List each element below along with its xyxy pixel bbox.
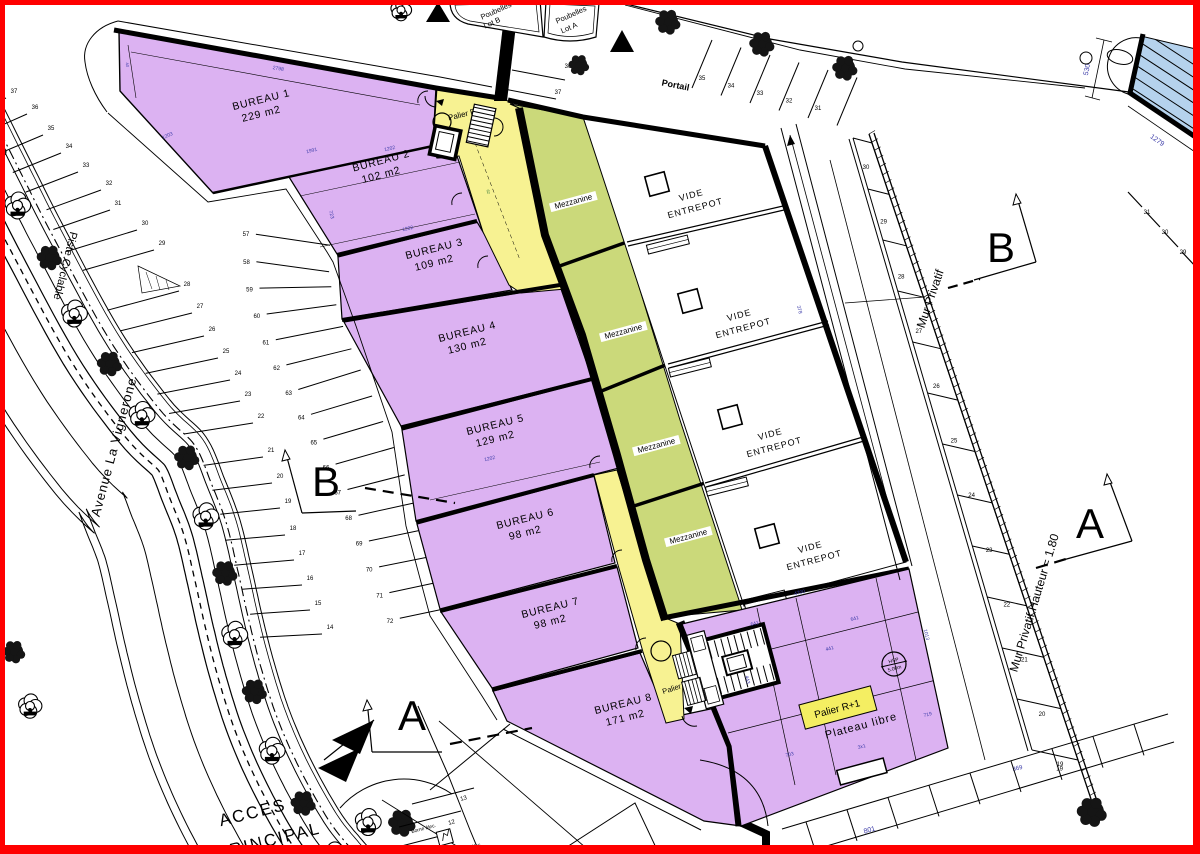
svg-text:27: 27 (197, 304, 204, 310)
svg-text:71: 71 (376, 593, 383, 599)
svg-text:69: 69 (356, 542, 363, 548)
svg-text:29: 29 (1180, 250, 1187, 256)
svg-text:33: 33 (83, 163, 90, 169)
svg-text:58: 58 (243, 260, 250, 266)
svg-text:72: 72 (387, 619, 394, 625)
svg-text:25: 25 (223, 349, 230, 355)
svg-text:32: 32 (786, 99, 793, 105)
svg-text:26: 26 (933, 384, 940, 390)
svg-text:23: 23 (986, 548, 993, 554)
svg-text:63: 63 (285, 391, 292, 397)
svg-text:29: 29 (880, 220, 887, 226)
svg-text:20: 20 (1039, 712, 1046, 718)
svg-text:34: 34 (728, 84, 735, 90)
svg-text:28: 28 (898, 274, 905, 280)
svg-text:36: 36 (32, 105, 39, 111)
svg-text:18: 18 (290, 526, 297, 532)
svg-text:20: 20 (277, 474, 284, 480)
svg-text:22: 22 (258, 414, 265, 420)
svg-text:14: 14 (327, 625, 334, 631)
svg-text:B: B (987, 224, 1015, 271)
svg-text:30: 30 (863, 165, 870, 171)
svg-text:68: 68 (345, 516, 352, 522)
svg-text:25: 25 (951, 439, 958, 445)
svg-text:30: 30 (142, 221, 149, 227)
svg-text:15: 15 (315, 601, 322, 607)
svg-text:65: 65 (310, 440, 317, 446)
svg-text:64: 64 (298, 416, 305, 422)
svg-text:57: 57 (243, 232, 250, 238)
svg-text:23: 23 (245, 392, 252, 398)
svg-text:35: 35 (699, 76, 706, 82)
svg-text:29: 29 (159, 241, 166, 247)
svg-text:B: B (312, 458, 340, 505)
svg-text:26: 26 (209, 327, 216, 333)
svg-text:30: 30 (1162, 230, 1169, 236)
svg-text:33: 33 (757, 91, 764, 97)
svg-text:A: A (1076, 500, 1104, 547)
svg-text:62: 62 (273, 366, 280, 372)
svg-text:61: 61 (263, 340, 270, 346)
svg-text:34: 34 (66, 144, 73, 150)
svg-text:22: 22 (1003, 603, 1010, 609)
svg-text:27: 27 (915, 329, 922, 335)
svg-text:21: 21 (268, 448, 275, 454)
svg-text:24: 24 (235, 371, 242, 377)
svg-text:28: 28 (184, 282, 191, 288)
svg-text:59: 59 (246, 287, 253, 293)
svg-text:35: 35 (48, 126, 55, 132)
svg-text:16: 16 (307, 576, 314, 582)
svg-text:31: 31 (1144, 210, 1151, 216)
svg-text:32: 32 (106, 181, 113, 187)
svg-text:31: 31 (115, 201, 122, 207)
svg-text:19: 19 (285, 499, 292, 505)
svg-text:31: 31 (815, 106, 822, 112)
svg-text:70: 70 (366, 568, 373, 574)
svg-text:37: 37 (555, 90, 562, 96)
svg-text:60: 60 (253, 314, 260, 320)
svg-text:37: 37 (11, 89, 18, 95)
svg-text:17: 17 (299, 551, 306, 557)
svg-text:24: 24 (968, 493, 975, 499)
